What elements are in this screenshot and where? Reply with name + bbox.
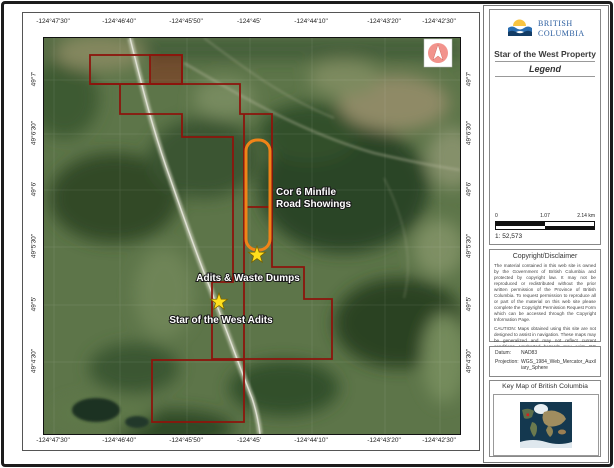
scale-tick-end: 2.14 km: [577, 213, 595, 219]
lat-label: 49°5': [31, 297, 38, 312]
lon-label: -124°42'30": [422, 18, 456, 25]
lon-label: -124°45'50": [169, 437, 203, 444]
lon-label: -124°46'40": [102, 437, 136, 444]
copyright-body: The material contained in this web site …: [494, 263, 596, 323]
scale-tick-mid: 1.07: [540, 213, 550, 219]
scale-bar-graphic: [495, 221, 595, 230]
lon-label: -124°46'40": [102, 18, 136, 25]
lon-label: -124°47'30": [36, 437, 70, 444]
datum-panel: Datum: NAD83 Projection: WGS_1984_Web_Me…: [489, 346, 601, 377]
datum-label: Datum:: [495, 350, 521, 356]
lat-label: 49°7': [31, 72, 38, 87]
projection-value: WGS_1984_Web_Mercator_Auxiliary_Sphere: [521, 359, 596, 371]
map-title: Star of the West Property: [490, 49, 600, 59]
lon-label: -124°43'20": [367, 437, 401, 444]
divider: [495, 76, 595, 77]
satellite-map-svg: Cor 6 Minfile Road Showings Adits & Wast…: [44, 38, 460, 434]
star-of-west-adits-label: Star of the West Adits: [169, 315, 273, 326]
world-key-map: [520, 402, 572, 448]
legend-panel: BRITISH COLUMBIA Star of the West Proper…: [489, 9, 601, 245]
keymap-heading: Key Map of British Columbia: [490, 383, 600, 390]
minfile-label-line1: Cor 6 Minfile: [276, 187, 336, 198]
location-marker: [527, 414, 530, 417]
lon-label: -124°45': [237, 437, 261, 444]
lat-label: 49°4'30": [466, 349, 473, 373]
lon-label: -124°42'30": [422, 437, 456, 444]
datum-value: NAD83: [521, 350, 537, 356]
lat-label: 49°6': [466, 182, 473, 197]
minfile-label-line2: Road Showings: [276, 199, 351, 210]
scale-ratio: 1: 52,573: [495, 233, 595, 240]
sidebar: BRITISH COLUMBIA Star of the West Proper…: [483, 5, 609, 463]
lat-label: 49°5': [466, 297, 473, 312]
lon-label: -124°45'50": [169, 18, 203, 25]
adits-waste-dumps-label: Adits & Waste Dumps: [196, 273, 300, 284]
satellite-map-canvas[interactable]: Cor 6 Minfile Road Showings Adits & Wast…: [43, 37, 461, 435]
lat-label: 49°6'30": [466, 121, 473, 145]
lat-label: 49°6': [31, 182, 38, 197]
map-document-page: -124°47'30" -124°46'40" -124°45'50" -124…: [0, 0, 614, 468]
lat-label: 49°5'30": [31, 234, 38, 258]
lon-label: -124°44'10": [294, 18, 328, 25]
projection-label: Projection:: [495, 359, 521, 371]
north-arrow-icon: [424, 39, 452, 67]
map-frame: -124°47'30" -124°46'40" -124°45'50" -124…: [22, 12, 480, 451]
lon-label: -124°43'20": [367, 18, 401, 25]
divider: [495, 61, 595, 62]
logo-text-line1: BRITISH: [538, 19, 573, 28]
copyright-heading: Copyright/Disclaimer: [490, 253, 600, 260]
claim-filled-cell: [150, 55, 182, 84]
legend-heading: Legend: [490, 64, 600, 74]
lat-label: 49°6'30": [31, 121, 38, 145]
lon-label: -124°44'10": [294, 437, 328, 444]
bc-government-logo: BRITISH COLUMBIA: [490, 15, 600, 46]
lat-label: 49°7': [466, 72, 473, 87]
lat-label: 49°5'30": [466, 234, 473, 258]
copyright-panel: Copyright/Disclaimer The material contai…: [489, 249, 601, 342]
logo-text-line2: COLUMBIA: [538, 29, 585, 38]
scale-tick-0: 0: [495, 213, 498, 219]
lat-label: 49°4'30": [31, 349, 38, 373]
keymap-box: [493, 394, 599, 456]
lon-label: -124°45': [237, 18, 261, 25]
keymap-panel: Key Map of British Columbia: [489, 380, 601, 457]
lon-label: -124°47'30": [36, 18, 70, 25]
scale-bar: 0 1.07 2.14 km 1: 52,573: [495, 213, 595, 240]
